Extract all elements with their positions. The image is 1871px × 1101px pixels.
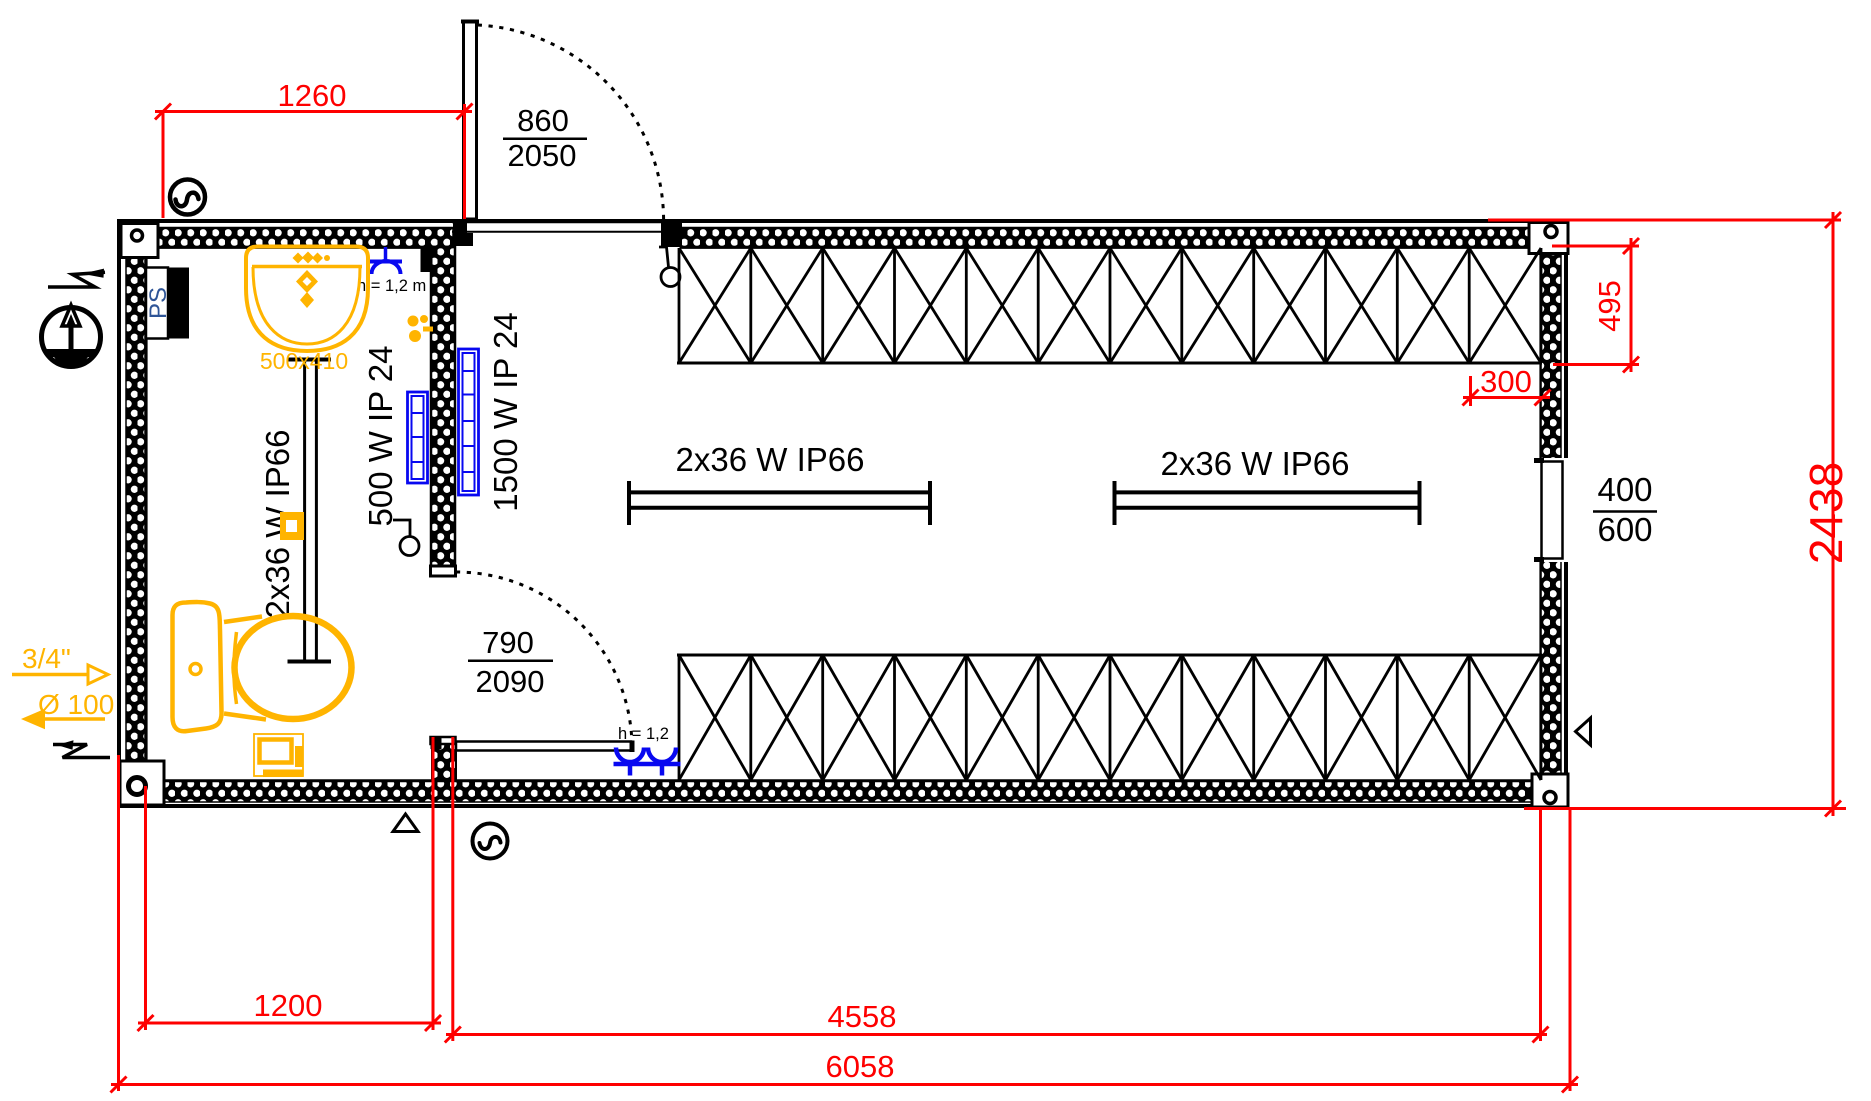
- svg-text:2438: 2438: [1800, 462, 1852, 564]
- svg-text:1260: 1260: [278, 78, 347, 113]
- svg-text:2x36 W IP66: 2x36 W IP66: [1161, 445, 1350, 482]
- svg-text:860: 860: [517, 103, 569, 138]
- svg-text:6058: 6058: [826, 1049, 895, 1084]
- svg-text:h = 1,2: h = 1,2: [618, 725, 669, 743]
- svg-text:600: 600: [1597, 511, 1652, 548]
- svg-text:1500 W IP 24: 1500 W IP 24: [487, 312, 524, 511]
- svg-text:2050: 2050: [508, 138, 577, 173]
- svg-text:500 W IP 24: 500 W IP 24: [362, 345, 399, 526]
- svg-text:Ø 100: Ø 100: [38, 689, 114, 720]
- svg-text:2x36 W IP66: 2x36 W IP66: [676, 441, 865, 478]
- svg-text:500x410: 500x410: [260, 348, 348, 374]
- svg-text:495: 495: [1592, 280, 1627, 332]
- svg-text:1200: 1200: [254, 988, 323, 1023]
- svg-text:4558: 4558: [828, 999, 897, 1034]
- svg-text:2090: 2090: [476, 664, 545, 699]
- svg-text:PS: PS: [145, 287, 172, 319]
- svg-text:790: 790: [482, 625, 534, 660]
- svg-text:300: 300: [1480, 364, 1532, 399]
- svg-text:3/4": 3/4": [22, 643, 71, 674]
- svg-text:400: 400: [1597, 471, 1652, 508]
